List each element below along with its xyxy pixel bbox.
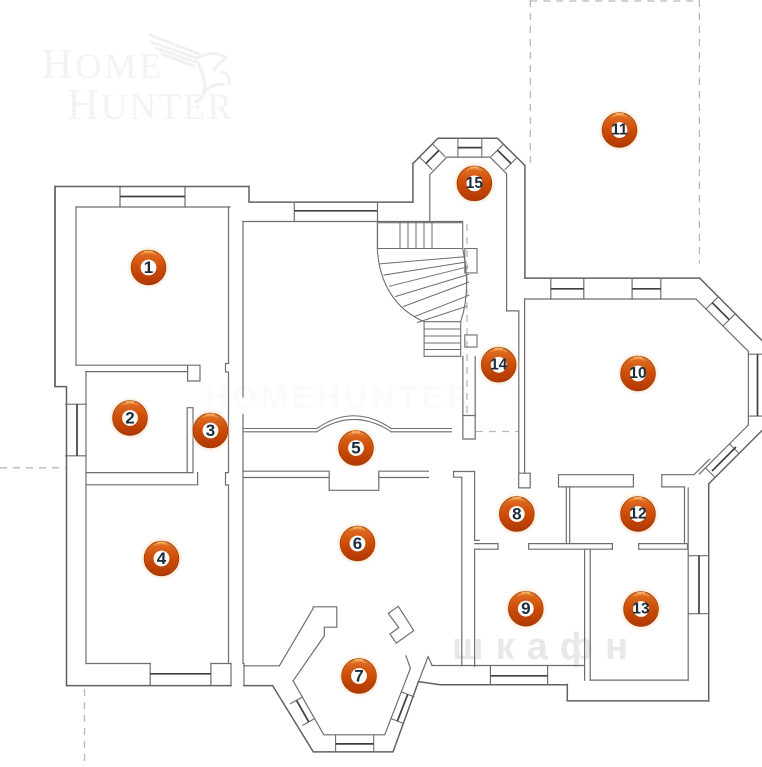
svg-text:15: 15 (466, 175, 484, 192)
svg-text:8: 8 (512, 505, 521, 524)
svg-text:HOMEHUNTER: HOMEHUNTER (205, 379, 474, 415)
svg-text:14: 14 (490, 356, 508, 373)
svg-text:11: 11 (611, 122, 628, 139)
svg-text:шкафн: шкафн (452, 626, 640, 668)
svg-text:4: 4 (157, 549, 167, 568)
svg-text:HOME: HOME (42, 42, 164, 88)
svg-text:5: 5 (351, 439, 360, 458)
svg-text:13: 13 (632, 601, 650, 618)
svg-text:12: 12 (629, 506, 646, 523)
svg-text:2: 2 (125, 409, 134, 428)
svg-text:3: 3 (206, 421, 215, 440)
svg-text:9: 9 (521, 599, 530, 618)
svg-text:6: 6 (353, 534, 362, 553)
svg-text:7: 7 (354, 667, 363, 686)
svg-text:10: 10 (629, 365, 646, 382)
svg-text:1: 1 (144, 258, 153, 277)
